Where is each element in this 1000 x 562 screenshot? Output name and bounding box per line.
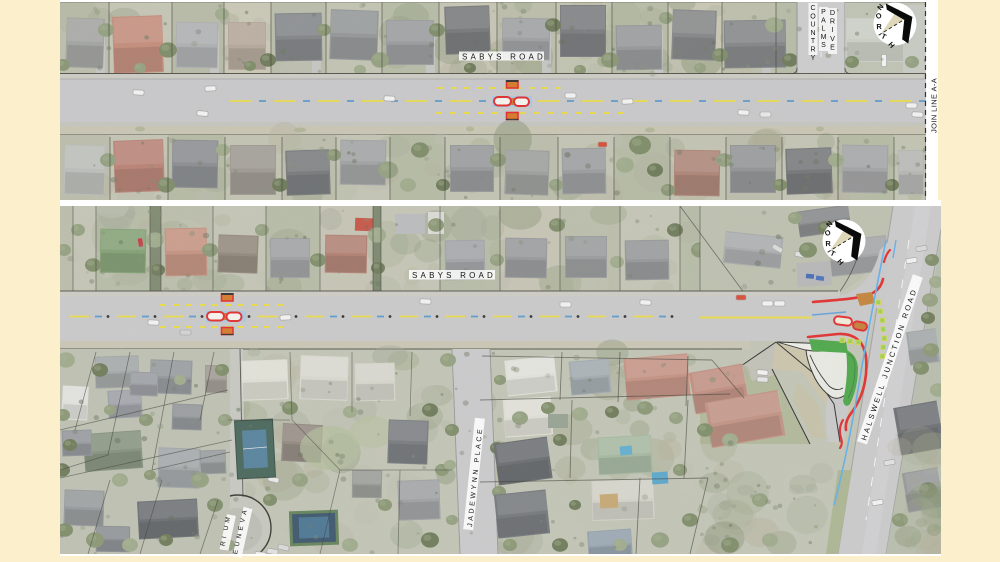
svg-text:SABYS ROAD: SABYS ROAD	[462, 53, 546, 62]
svg-text:JOIN LINE A-A: JOIN LINE A-A	[930, 78, 939, 133]
svg-text:U: U	[810, 22, 815, 29]
svg-text:A: A	[821, 17, 826, 24]
svg-text:N: N	[810, 30, 815, 37]
svg-text:R: R	[810, 47, 815, 54]
svg-text:M: M	[821, 34, 827, 41]
svg-text:R: R	[876, 22, 882, 31]
svg-text:P: P	[821, 9, 826, 16]
svg-text:C: C	[810, 5, 815, 12]
svg-text:T: T	[811, 38, 816, 45]
svg-text:S: S	[821, 42, 826, 49]
svg-text:L: L	[822, 26, 826, 33]
svg-text:O: O	[810, 13, 816, 20]
svg-text:Y: Y	[811, 55, 816, 62]
svg-text:R: R	[825, 239, 831, 248]
svg-text:SABYS ROAD: SABYS ROAD	[412, 271, 496, 280]
svg-text:E: E	[830, 42, 835, 51]
